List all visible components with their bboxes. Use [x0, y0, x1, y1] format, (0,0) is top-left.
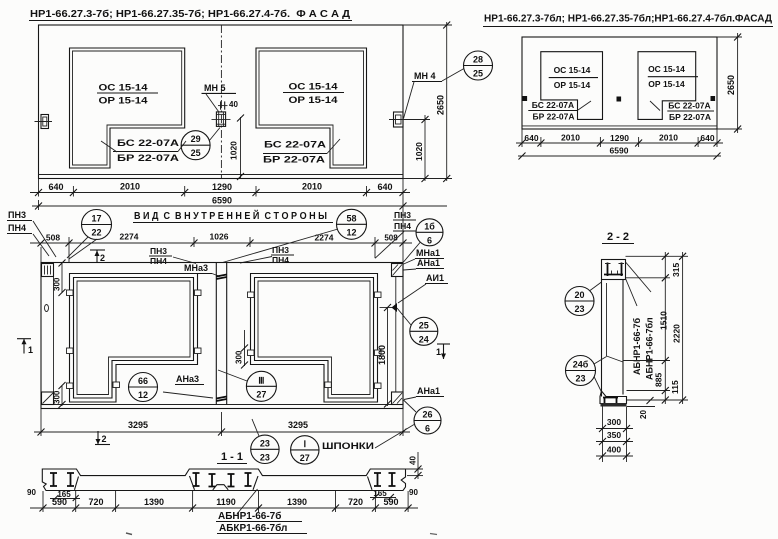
svg-text:Ⅰ: Ⅰ [303, 439, 306, 449]
svg-text:885: 885 [654, 373, 664, 387]
svg-text:БР 22-07А: БР 22-07А [263, 155, 326, 165]
svg-text:27: 27 [256, 390, 266, 400]
svg-text:300: 300 [607, 417, 621, 427]
svg-text:25: 25 [191, 148, 201, 158]
svg-text:1510: 1510 [659, 311, 669, 330]
svg-text:ПН3: ПН3 [8, 210, 26, 220]
svg-text:АНа1: АНа1 [417, 258, 440, 268]
svg-text:1390: 1390 [287, 497, 307, 507]
svg-text:12: 12 [138, 390, 148, 400]
svg-text:24б: 24б [573, 360, 589, 370]
svg-text:28: 28 [473, 55, 483, 65]
svg-text:27: 27 [300, 453, 310, 463]
svg-text:1 - 1: 1 - 1 [221, 451, 243, 463]
svg-text:508: 508 [384, 234, 398, 243]
svg-text:АБНР1-66-7бл: АБНР1-66-7бл [645, 317, 655, 380]
svg-text:1190: 1190 [216, 497, 236, 507]
svg-text:58: 58 [346, 214, 356, 224]
svg-text:БС 22-07А: БС 22-07А [117, 138, 180, 148]
svg-text:1: 1 [436, 347, 441, 357]
svg-text:2010: 2010 [561, 133, 580, 143]
svg-text:МНа3: МНа3 [184, 263, 208, 273]
svg-text:2220: 2220 [672, 324, 682, 343]
svg-text:ОР 15-14: ОР 15-14 [99, 96, 148, 106]
svg-text:ПН4: ПН4 [272, 255, 289, 265]
svg-text:400: 400 [607, 445, 621, 455]
svg-text:АИ1: АИ1 [426, 273, 444, 283]
svg-text:20: 20 [639, 410, 648, 419]
svg-text:17: 17 [91, 214, 101, 224]
svg-text:АБНР1-66-7б: АБНР1-66-7б [218, 510, 281, 522]
svg-text:508: 508 [46, 233, 60, 243]
svg-text:66: 66 [138, 376, 148, 386]
svg-text:1290: 1290 [212, 182, 232, 192]
svg-text:6: 6 [427, 236, 432, 246]
svg-text:23: 23 [260, 453, 270, 463]
svg-text:24: 24 [419, 335, 429, 345]
svg-text:ОР 15-14: ОР 15-14 [289, 95, 338, 105]
svg-text:165: 165 [57, 490, 71, 499]
svg-text:БР 22-07А: БР 22-07А [532, 112, 574, 122]
svg-text:В И Д С В Н У Т Р Е Н Н Е Й: В И Д С В Н У Т Р Е Н Н Е Й С Т О Р О Н … [134, 209, 327, 222]
svg-text:2: 2 [100, 253, 105, 263]
svg-text:640: 640 [700, 133, 714, 143]
svg-text:ПН3: ПН3 [150, 246, 167, 256]
svg-text:ОС 15-14: ОС 15-14 [648, 64, 685, 74]
svg-text:720: 720 [88, 497, 103, 507]
svg-text:640: 640 [48, 182, 63, 192]
svg-text:АБНР1-66-7б: АБНР1-66-7б [632, 318, 642, 375]
svg-text:ШПОНКИ: ШПОНКИ [322, 441, 374, 451]
svg-text:АНа3: АНа3 [176, 374, 199, 384]
svg-text:22: 22 [91, 228, 101, 238]
svg-text:БР 22-07А: БР 22-07А [117, 153, 180, 163]
svg-text:350: 350 [607, 430, 621, 440]
svg-text:БС 22-07А: БС 22-07А [264, 140, 327, 150]
svg-text:1800: 1800 [377, 345, 387, 365]
svg-text:300: 300 [53, 277, 62, 291]
svg-text:БР 22-07А: БР 22-07А [669, 112, 711, 122]
svg-text:90: 90 [409, 488, 418, 497]
svg-text:ОС 15-14: ОС 15-14 [554, 65, 591, 75]
svg-text:90: 90 [27, 488, 36, 497]
svg-text:ОС 15-14: ОС 15-14 [289, 82, 338, 92]
svg-text:ОС 15-14: ОС 15-14 [99, 83, 148, 93]
svg-text:26: 26 [422, 410, 432, 420]
svg-text:6590: 6590 [610, 146, 629, 156]
svg-text:590: 590 [383, 497, 398, 507]
svg-text:25: 25 [473, 69, 483, 79]
svg-text:12: 12 [346, 228, 356, 238]
svg-text:300: 300 [53, 390, 62, 404]
svg-text:40: 40 [229, 100, 238, 109]
svg-text:2010: 2010 [659, 133, 678, 143]
svg-text:23: 23 [574, 304, 584, 314]
svg-text:2: 2 [102, 434, 107, 444]
svg-text:2274: 2274 [120, 232, 139, 242]
svg-text:29: 29 [191, 134, 201, 144]
svg-text:300: 300 [235, 350, 244, 364]
svg-text:1390: 1390 [144, 497, 164, 507]
svg-text:НР1-66.27.3-7б; НР1-66.27.35-7: НР1-66.27.3-7б; НР1-66.27.35-7б; НР1-66.… [30, 8, 350, 20]
svg-text:6: 6 [425, 424, 430, 434]
svg-text:2274: 2274 [315, 233, 334, 243]
svg-text:40: 40 [409, 456, 418, 465]
svg-text:6590: 6590 [212, 196, 232, 206]
svg-text:2010: 2010 [120, 182, 140, 192]
svg-text:ПН4: ПН4 [394, 221, 411, 231]
svg-text:315: 315 [671, 263, 681, 277]
svg-text:АБКР1-66-7бл: АБКР1-66-7бл [219, 522, 287, 534]
svg-text:БС 22-07А: БС 22-07А [532, 100, 574, 110]
svg-text:3295: 3295 [128, 420, 148, 430]
svg-text:720: 720 [348, 497, 363, 507]
svg-text:ПН4: ПН4 [8, 223, 26, 233]
svg-text:1020: 1020 [414, 142, 424, 161]
svg-text:1б: 1б [424, 222, 435, 232]
svg-text:1020: 1020 [229, 141, 239, 160]
svg-text:640: 640 [524, 133, 538, 143]
svg-text:МН 4: МН 4 [414, 71, 436, 81]
svg-text:115: 115 [670, 380, 680, 394]
svg-text:ОР 15-14: ОР 15-14 [648, 79, 685, 89]
svg-text:АНа1: АНа1 [417, 386, 440, 396]
svg-text:20: 20 [574, 290, 584, 300]
svg-text:1: 1 [28, 345, 33, 355]
svg-text:1290: 1290 [610, 133, 629, 143]
svg-text:2 - 2: 2 - 2 [607, 231, 629, 243]
svg-text:НР1-66.27.3-7бл; НР1-66.27.35-: НР1-66.27.3-7бл; НР1-66.27.35-7бл;НР1-66… [484, 13, 772, 25]
svg-text:23: 23 [260, 439, 270, 449]
svg-text:2010: 2010 [302, 182, 322, 192]
svg-text:1026: 1026 [210, 232, 229, 242]
svg-text:2650: 2650 [436, 95, 446, 115]
svg-text:640: 640 [377, 182, 392, 192]
svg-text:3295: 3295 [288, 420, 308, 430]
svg-text:25: 25 [419, 321, 429, 331]
svg-text:ОР 15-14: ОР 15-14 [554, 80, 591, 90]
svg-text:МН 5: МН 5 [204, 83, 226, 93]
svg-text:23: 23 [575, 374, 585, 384]
svg-text:ПН3: ПН3 [394, 210, 411, 220]
svg-text:МНа1: МНа1 [416, 248, 440, 258]
svg-text:Ⅲ: Ⅲ [258, 376, 264, 386]
svg-text:ПН3: ПН3 [272, 245, 289, 255]
svg-text:БС 22-07А: БС 22-07А [668, 101, 710, 111]
svg-text:ПН4: ПН4 [150, 256, 167, 266]
svg-text:2650: 2650 [726, 75, 736, 95]
